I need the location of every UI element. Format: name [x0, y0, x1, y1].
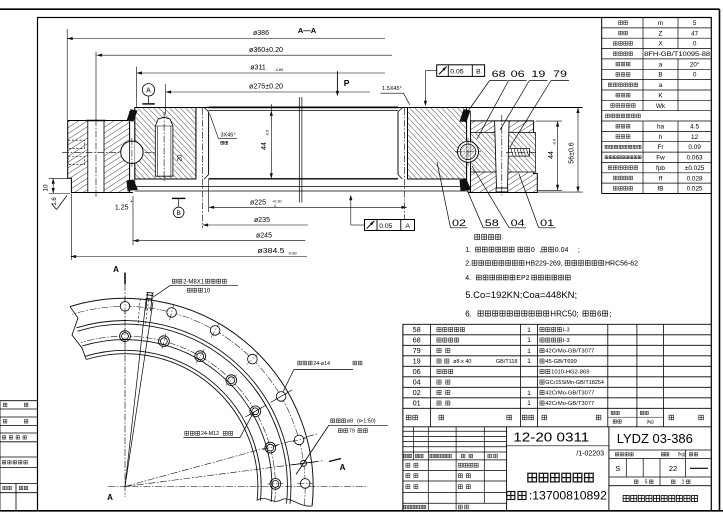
svg-text:P: P — [344, 78, 350, 88]
svg-text:0: 0 — [274, 204, 276, 208]
svg-text:K: K — [658, 92, 663, 99]
svg-text:12: 12 — [691, 134, 699, 141]
svg-text:44: 44 — [261, 142, 268, 150]
svg-text:EP2: EP2 — [516, 275, 529, 282]
svg-text:79: 79 — [413, 346, 421, 355]
svg-text:LYDZ 03-386: LYDZ 03-386 — [617, 431, 693, 446]
svg-text:Z: Z — [659, 30, 663, 37]
svg-text:06: 06 — [511, 69, 525, 80]
svg-text:1: 1 — [527, 348, 531, 355]
svg-text:5: 5 — [693, 20, 697, 27]
svg-text:4.: 4. — [465, 275, 471, 282]
svg-text:0: 0 — [531, 247, 535, 254]
svg-text:5: 5 — [645, 480, 648, 486]
svg-text:a: a — [659, 82, 663, 89]
svg-text:04: 04 — [413, 377, 421, 386]
svg-text:3X45°: 3X45° — [220, 132, 235, 138]
svg-text:(⊳1:50): (⊳1:50) — [357, 419, 376, 425]
svg-text:A: A — [107, 493, 113, 502]
svg-text:47: 47 — [691, 30, 699, 37]
svg-text:5.Co=192KN;Coa=448KN;: 5.Co=192KN;Coa=448KN; — [465, 290, 577, 301]
svg-text:79: 79 — [349, 429, 355, 435]
svg-text:ø360±0.20: ø360±0.20 — [249, 47, 283, 54]
svg-text:20: 20 — [178, 154, 184, 161]
svg-text:02: 02 — [413, 388, 421, 397]
svg-text:ha: ha — [657, 124, 665, 131]
svg-text:ff: ff — [659, 175, 663, 182]
svg-text:-0.6: -0.6 — [266, 130, 270, 137]
svg-text::13700810892: :13700810892 — [529, 491, 607, 503]
svg-text:1: 1 — [527, 337, 531, 344]
svg-text:(kg): (kg) — [678, 452, 686, 457]
svg-text:68: 68 — [492, 69, 506, 80]
svg-text:56±0.6: 56±0.6 — [569, 142, 576, 163]
svg-text:1.6: 1.6 — [52, 197, 58, 206]
svg-text:ø8 x 40: ø8 x 40 — [453, 359, 471, 365]
svg-text:,: , — [539, 247, 541, 254]
svg-text:m: m — [658, 20, 663, 27]
svg-text:X: X — [658, 41, 663, 48]
svg-text:A—A: A—A — [298, 26, 317, 35]
svg-text:68: 68 — [413, 335, 421, 344]
svg-text:/1-02203: /1-02203 — [576, 451, 604, 458]
svg-text:0: 0 — [693, 72, 697, 79]
svg-text:10: 10 — [43, 184, 50, 192]
svg-text:12-20 0311: 12-20 0311 — [513, 430, 589, 445]
svg-text:A: A — [146, 88, 151, 95]
svg-text:GB/T118: GB/T118 — [496, 359, 518, 365]
svg-text:20°: 20° — [690, 60, 700, 68]
svg-text:±0.025: ±0.025 — [685, 165, 705, 172]
svg-text:+0.30: +0.30 — [272, 200, 282, 204]
svg-text:4.5: 4.5 — [690, 124, 699, 131]
svg-text:0.05: 0.05 — [450, 68, 463, 75]
svg-text:01: 01 — [540, 218, 554, 229]
svg-text:h: h — [659, 134, 663, 141]
svg-text:ø386: ø386 — [253, 30, 269, 37]
svg-text:1: 1 — [527, 358, 531, 365]
svg-text:-0.89: -0.89 — [288, 252, 297, 256]
svg-text:0.025: 0.025 — [687, 186, 703, 193]
svg-text:2.: 2. — [465, 261, 471, 268]
svg-text:HRC56-62: HRC56-62 — [605, 261, 638, 268]
svg-text:I-3: I-3 — [563, 338, 570, 344]
svg-text:1: 1 — [527, 327, 531, 334]
svg-text:42CrMo-GB/T3077: 42CrMo-GB/T3077 — [545, 401, 594, 407]
svg-text:02: 02 — [452, 218, 466, 229]
svg-text:A: A — [405, 223, 410, 230]
svg-text:ø275±0.20: ø275±0.20 — [249, 84, 283, 91]
svg-text:B: B — [476, 68, 481, 75]
svg-text:ø245: ø245 — [256, 232, 272, 239]
svg-text:B: B — [177, 210, 181, 217]
svg-text:04: 04 — [511, 218, 525, 229]
svg-text:06: 06 — [413, 367, 421, 376]
svg-text:58: 58 — [485, 218, 499, 229]
svg-text:0.04: 0.04 — [555, 247, 569, 254]
svg-text:Wk: Wk — [656, 103, 666, 110]
svg-text:GCr15SiMn-GB/T18254: GCr15SiMn-GB/T18254 — [545, 380, 604, 386]
svg-text:58: 58 — [413, 325, 421, 334]
svg-text:1.5X45°: 1.5X45° — [382, 86, 402, 92]
svg-text:0: 0 — [693, 41, 697, 48]
svg-text:ø235: ø235 — [254, 217, 270, 224]
svg-text:19: 19 — [531, 69, 545, 80]
svg-text:44: 44 — [548, 151, 555, 159]
svg-text:1.25: 1.25 — [115, 205, 129, 212]
svg-text:45-GB/T699: 45-GB/T699 — [545, 359, 577, 365]
svg-text:1: 1 — [527, 390, 531, 397]
svg-text:-0.89: -0.89 — [275, 68, 284, 72]
svg-text:1: 1 — [527, 400, 531, 407]
svg-text:22: 22 — [669, 464, 677, 473]
svg-text:0.063: 0.063 — [687, 155, 703, 162]
svg-text:;: ; — [609, 309, 611, 318]
svg-text:I-3: I-3 — [563, 328, 570, 334]
svg-text:Fw: Fw — [656, 155, 665, 162]
svg-text:24-M12: 24-M12 — [201, 431, 219, 437]
svg-text:ø225: ø225 — [250, 199, 266, 206]
svg-text:42CrMo-GB/T3077: 42CrMo-GB/T3077 — [545, 349, 594, 355]
svg-text:2-M8X1: 2-M8X1 — [183, 279, 205, 285]
svg-text:1.: 1. — [465, 247, 471, 254]
svg-text:42CrMo-GB/T3077: 42CrMo-GB/T3077 — [545, 391, 594, 397]
svg-text:-0.6: -0.6 — [553, 139, 557, 146]
svg-text:fB: fB — [657, 186, 663, 193]
svg-text:0.09: 0.09 — [688, 144, 701, 151]
svg-text:79: 79 — [553, 69, 567, 80]
svg-text:6.: 6. — [465, 309, 472, 318]
svg-text:A: A — [113, 265, 119, 274]
svg-text:0.05: 0.05 — [379, 223, 392, 230]
svg-text:24-ø14: 24-ø14 — [313, 361, 330, 367]
svg-text:0.028: 0.028 — [687, 175, 703, 182]
svg-text:HRC50;: HRC50; — [550, 309, 578, 318]
svg-text:1: 1 — [682, 480, 685, 486]
svg-text:19: 19 — [413, 356, 421, 365]
svg-text:8FH-GB/T10095-88: 8FH-GB/T10095-88 — [644, 51, 711, 58]
svg-text:10: 10 — [204, 288, 211, 294]
svg-text:HB229-269,: HB229-269, — [525, 261, 562, 268]
svg-text:01: 01 — [413, 398, 421, 407]
svg-text:B: B — [658, 72, 662, 79]
svg-text:ø8: ø8 — [347, 419, 353, 425]
svg-text:;: ; — [578, 247, 580, 254]
svg-text:ø384.5: ø384.5 — [258, 248, 285, 255]
svg-text:A: A — [340, 463, 346, 472]
svg-text:ø311: ø311 — [250, 65, 266, 72]
svg-text:S: S — [615, 464, 620, 473]
svg-text:(kg): (kg) — [647, 419, 655, 424]
svg-text:fpb: fpb — [656, 165, 665, 172]
svg-text:a: a — [659, 61, 663, 68]
svg-text:6: 6 — [597, 309, 602, 318]
svg-text::: : — [502, 234, 504, 241]
svg-text:Fr: Fr — [657, 144, 664, 151]
svg-text:1010-HG2-869: 1010-HG2-869 — [551, 370, 589, 376]
